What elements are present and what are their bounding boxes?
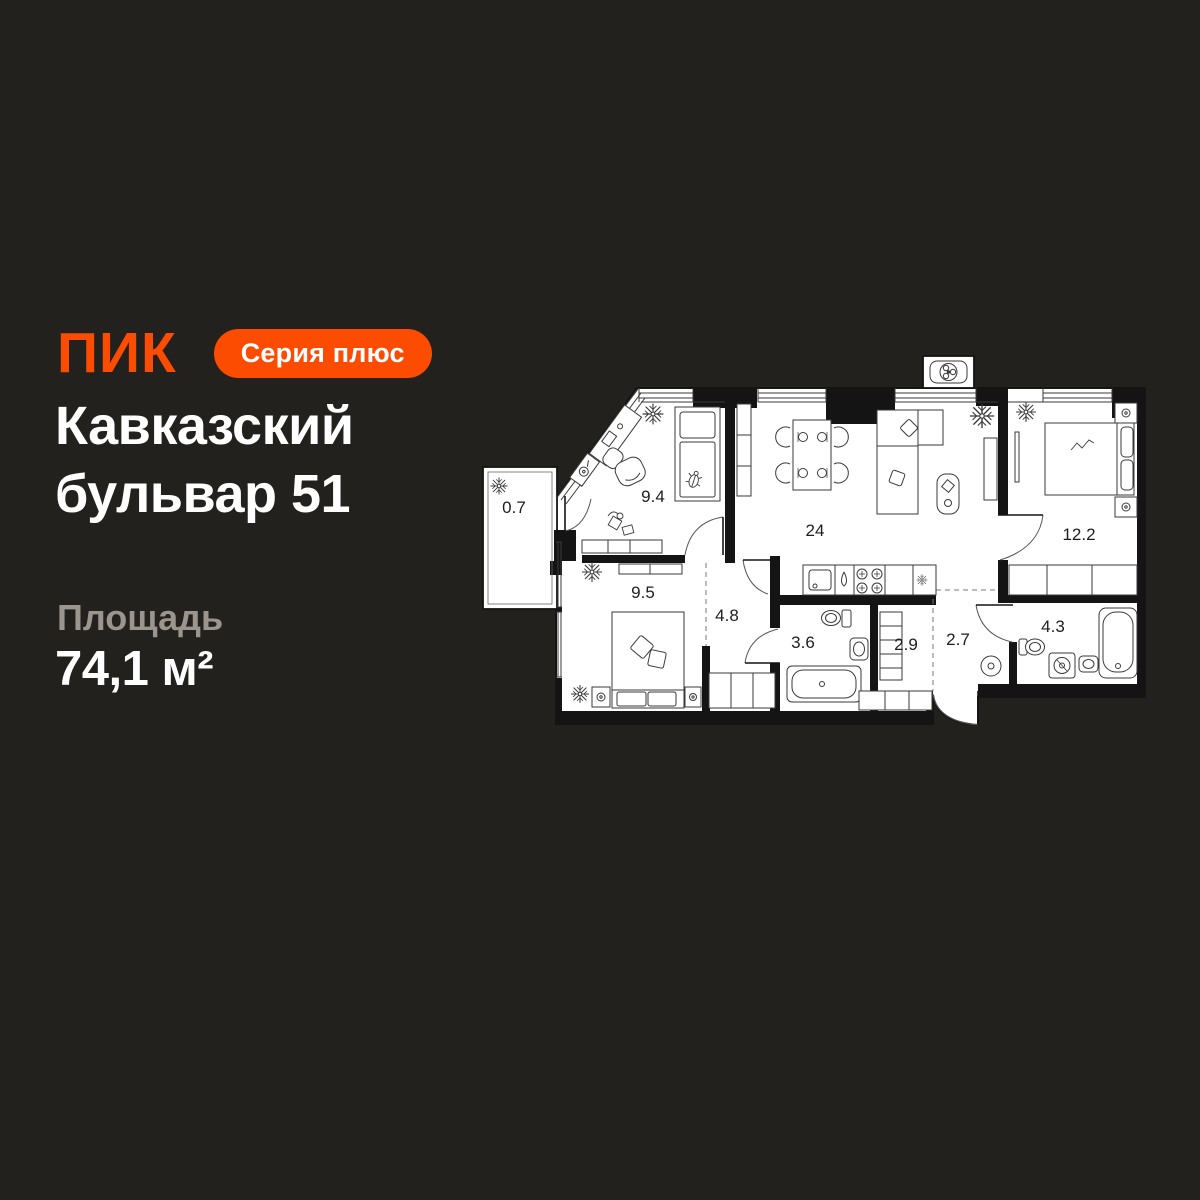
series-plus-badge: Серия плюс xyxy=(214,329,432,378)
room-area-label-4.3: 4.3 xyxy=(1041,617,1065,636)
balcony-floor xyxy=(483,467,557,609)
room-area-label-2.7: 2.7 xyxy=(946,630,970,649)
pouf-icon xyxy=(981,656,1001,676)
promo-card: { "brand": { "logo": "ПИК", "badge": "Се… xyxy=(0,0,1200,1200)
nightstand-icon-95b xyxy=(685,687,701,707)
nightstand-icon-95a xyxy=(592,687,610,707)
sink-icon xyxy=(809,570,831,590)
hall-27-furniture xyxy=(981,656,1001,676)
bathtub-icon xyxy=(787,666,861,702)
room-area-label-9.5: 9.5 xyxy=(631,583,655,602)
wardrobe-icon xyxy=(582,540,662,553)
cabinet-icon-29 xyxy=(859,691,932,710)
dining-table-icon xyxy=(793,420,831,490)
brand-row: ПИК Серия плюс xyxy=(57,325,432,382)
room-area-label-2.9: 2.9 xyxy=(894,635,918,654)
toilet-icon-43 xyxy=(1019,639,1045,655)
room-area-label-24: 24 xyxy=(806,521,825,540)
plant-icon xyxy=(643,404,664,425)
pik-logo: ПИК xyxy=(57,325,177,382)
washbasin-icon xyxy=(850,638,868,660)
double-bed-icon-95 xyxy=(612,612,684,708)
plant-icon xyxy=(490,477,507,494)
area-label: Площадь xyxy=(57,597,223,639)
cabinet-icon xyxy=(737,404,751,496)
plant-icon xyxy=(582,562,602,582)
room-area-label-4.8: 4.8 xyxy=(715,606,739,625)
coffee-table-icon xyxy=(937,474,959,514)
room-area-label-3.6: 3.6 xyxy=(791,633,815,652)
room-area-label-12.2: 12.2 xyxy=(1062,525,1095,544)
plant-icon xyxy=(1016,402,1036,422)
wardrobe-icon-122 xyxy=(1009,565,1137,595)
room-area-label-0.7: 0.7 xyxy=(502,498,526,517)
nightstand-icon-2 xyxy=(1115,497,1137,517)
fridge-icon xyxy=(916,574,927,585)
floor-plan-container: 0.79.42412.29.54.83.62.92.74.3 xyxy=(481,350,1154,782)
double-bed-icon xyxy=(1045,423,1134,495)
kitchen-counter xyxy=(803,565,936,595)
tv-stand-icon xyxy=(984,438,997,500)
washing-machine-icon xyxy=(1049,653,1075,678)
bathtub-icon-43 xyxy=(1099,608,1137,678)
hall-wardrobe-icon xyxy=(709,673,775,708)
toilet-icon xyxy=(822,610,852,627)
area-value: 74,1 м² xyxy=(55,641,213,697)
tv-icon xyxy=(1015,432,1019,482)
washbasin-icon-43 xyxy=(1079,656,1098,672)
plant-icon xyxy=(571,685,589,703)
floor-plan: 0.79.42412.29.54.83.62.92.74.3 xyxy=(481,350,1154,782)
room-area-label-9.4: 9.4 xyxy=(641,487,665,506)
nightstand-icon xyxy=(1115,403,1137,423)
dresser-icon xyxy=(619,564,682,574)
hall-48-furniture xyxy=(709,673,775,708)
page-title: Кавказский бульвар 51 xyxy=(55,392,525,528)
plant-icon xyxy=(970,404,994,428)
single-bed-icon xyxy=(675,407,720,501)
